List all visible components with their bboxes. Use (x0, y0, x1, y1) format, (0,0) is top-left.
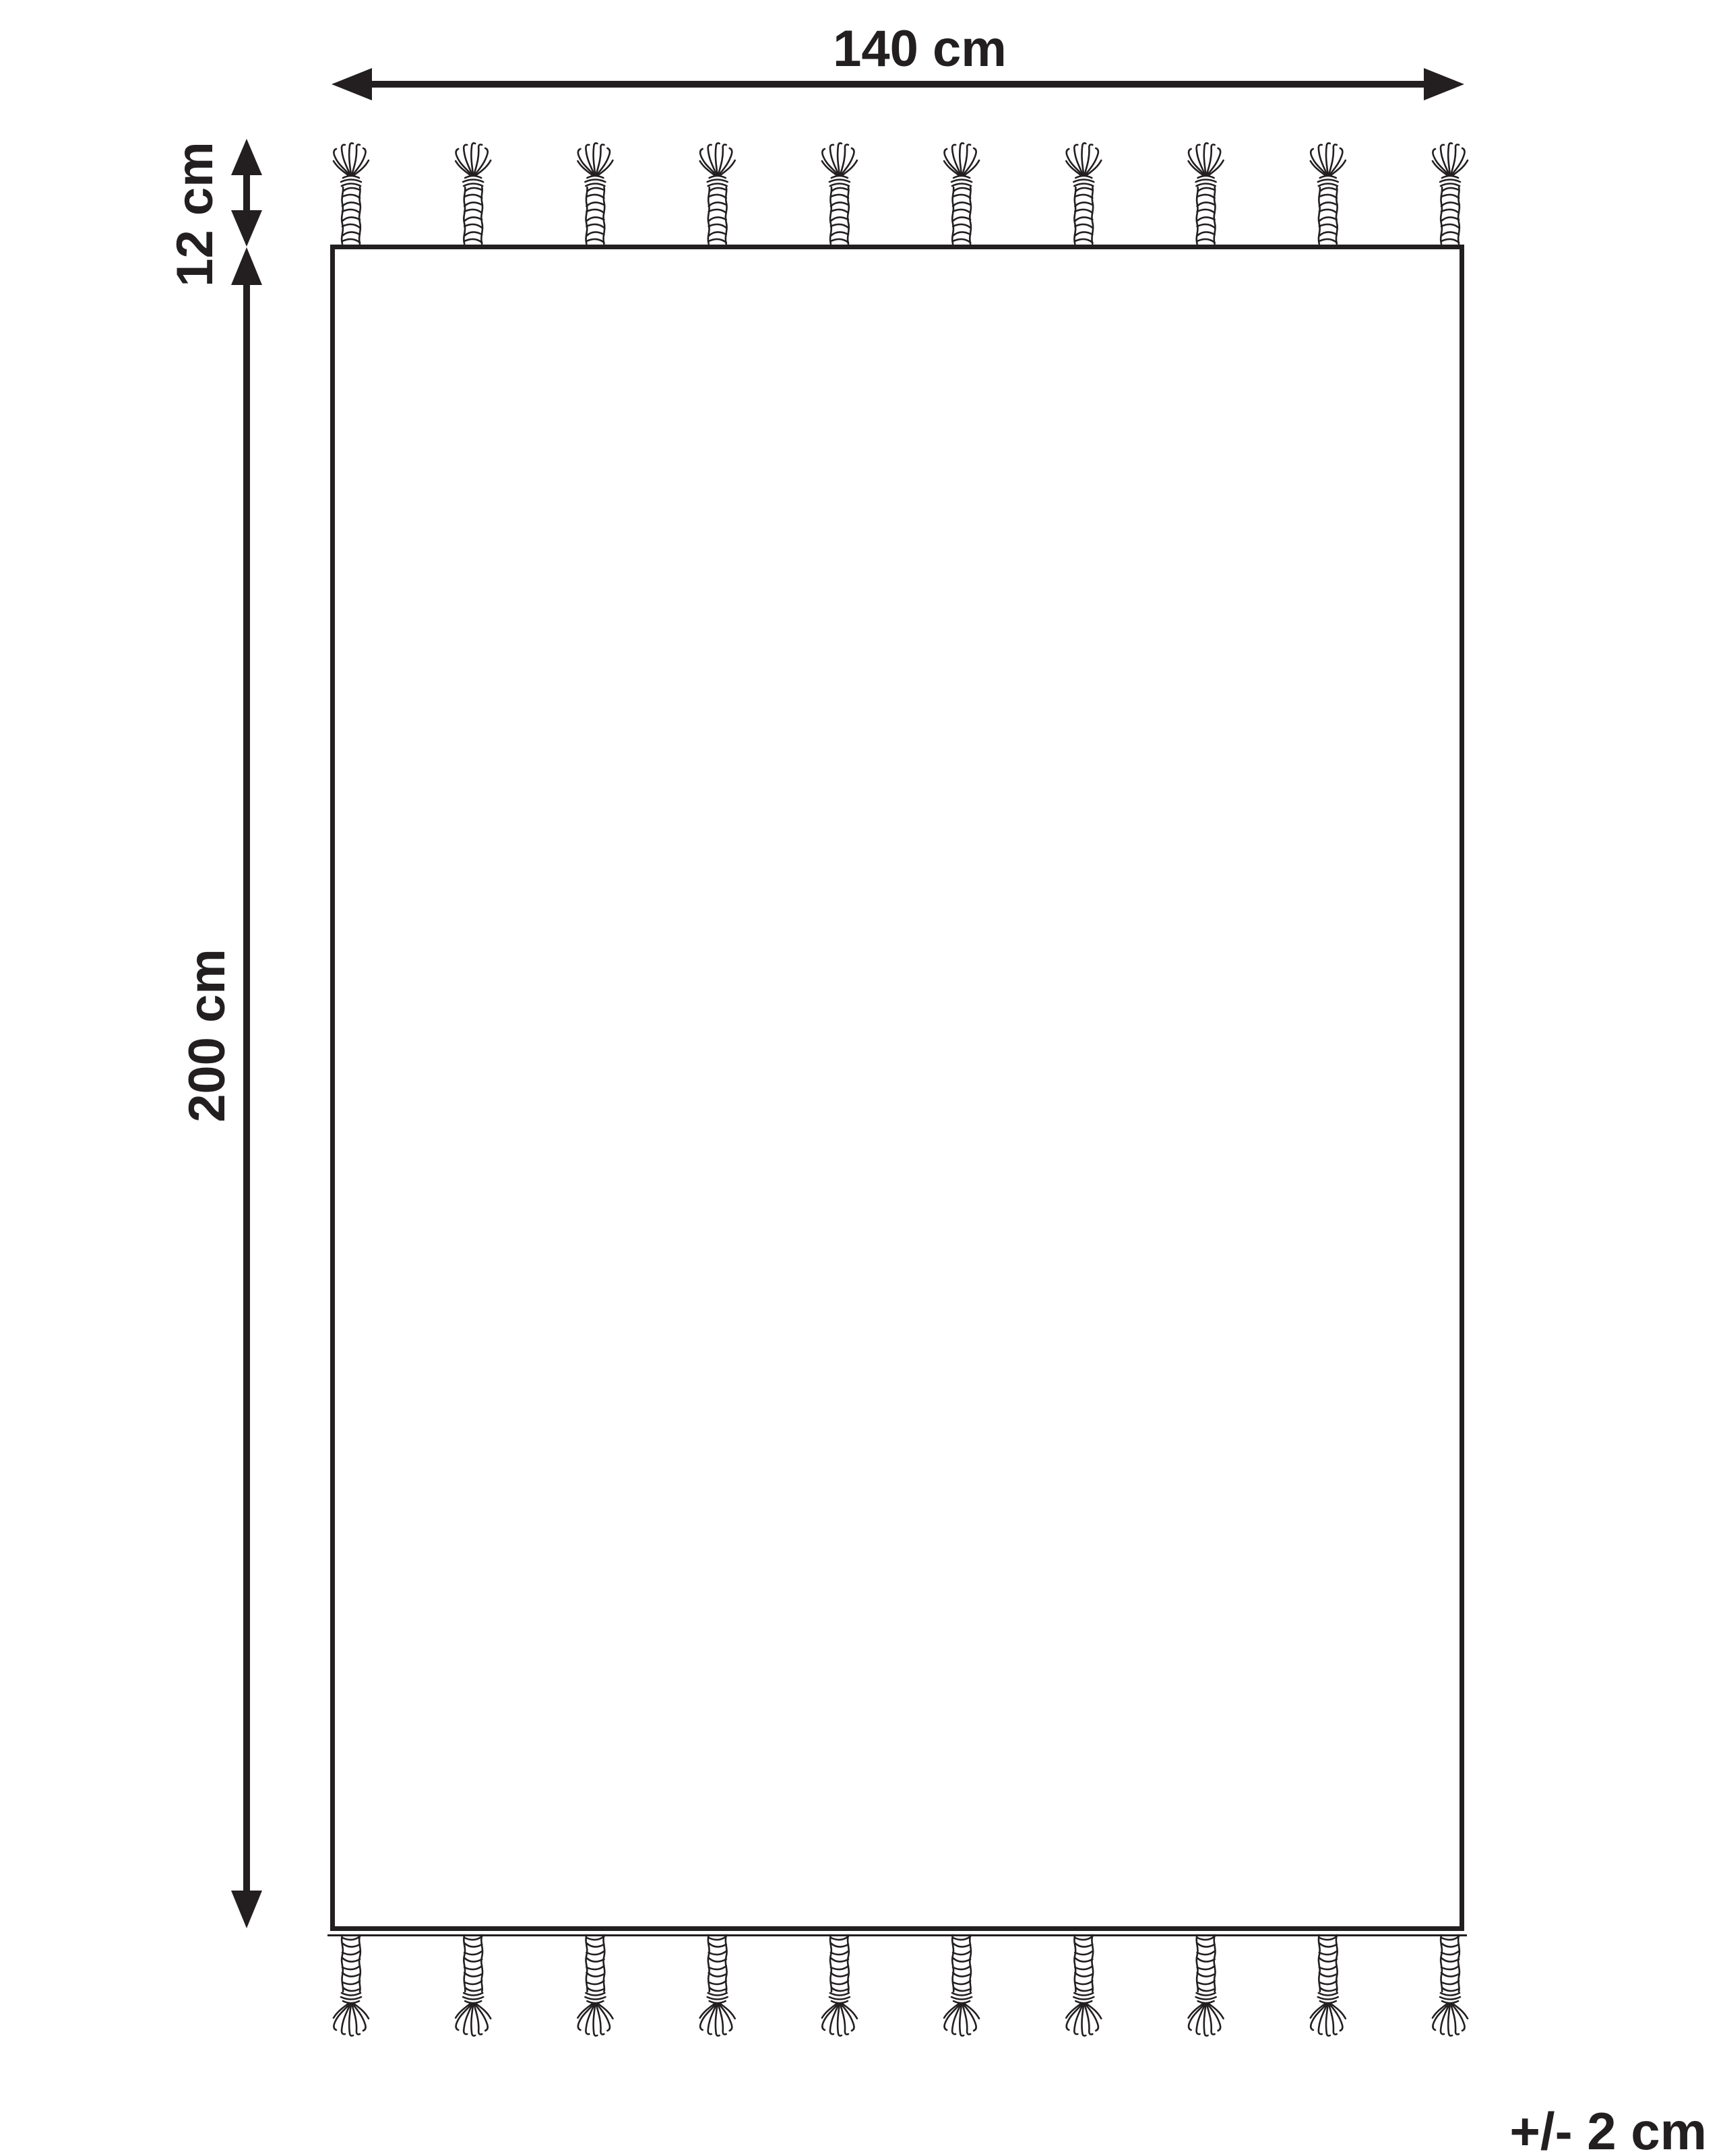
arrow-up-head (231, 247, 262, 285)
tolerance-label: +/- 2 cm (1509, 2105, 1707, 2156)
tassel-icon (1311, 143, 1346, 244)
arrow-up-head (231, 139, 262, 175)
rug-outline (333, 247, 1462, 1929)
height-dimension-label: 200 cm (182, 949, 233, 1122)
fringe-dimension-label: 12 cm (170, 141, 221, 287)
tassel-icon (1433, 143, 1468, 244)
tassel-icon (700, 143, 735, 244)
tassel-icon (822, 143, 857, 244)
fringe-dimension-arrow (231, 139, 262, 247)
bottom-fringe (334, 1935, 1468, 2036)
tassel-icon (700, 1935, 735, 2036)
tassel-icon (577, 1935, 613, 2036)
rug-dimension-diagram: 140 cm 12 cm 200 cm +/- 2 cm (0, 0, 1725, 2156)
tassel-icon (334, 143, 369, 244)
tassel-icon (1433, 1935, 1468, 2036)
arrow-down-head (231, 1891, 262, 1928)
tassel-icon (1189, 1935, 1224, 2036)
top-fringe (334, 143, 1468, 244)
tassel-icon (1311, 1935, 1346, 2036)
tassel-icon (1066, 143, 1101, 244)
arrow-right-head (1424, 68, 1464, 100)
tassel-icon (944, 1935, 979, 2036)
arrow-left-head (332, 68, 372, 100)
tassel-icon (1066, 1935, 1101, 2036)
diagram-graphics (0, 0, 1725, 2156)
tassel-icon (577, 143, 613, 244)
tassel-icon (456, 143, 491, 244)
arrow-down-head (231, 210, 262, 247)
width-dimension-label: 140 cm (833, 24, 1007, 75)
tassel-icon (456, 1935, 491, 2036)
tassel-icon (1189, 143, 1224, 244)
tassel-icon (944, 143, 979, 244)
tassel-icon (334, 1935, 369, 2036)
tassel-icon (822, 1935, 857, 2036)
